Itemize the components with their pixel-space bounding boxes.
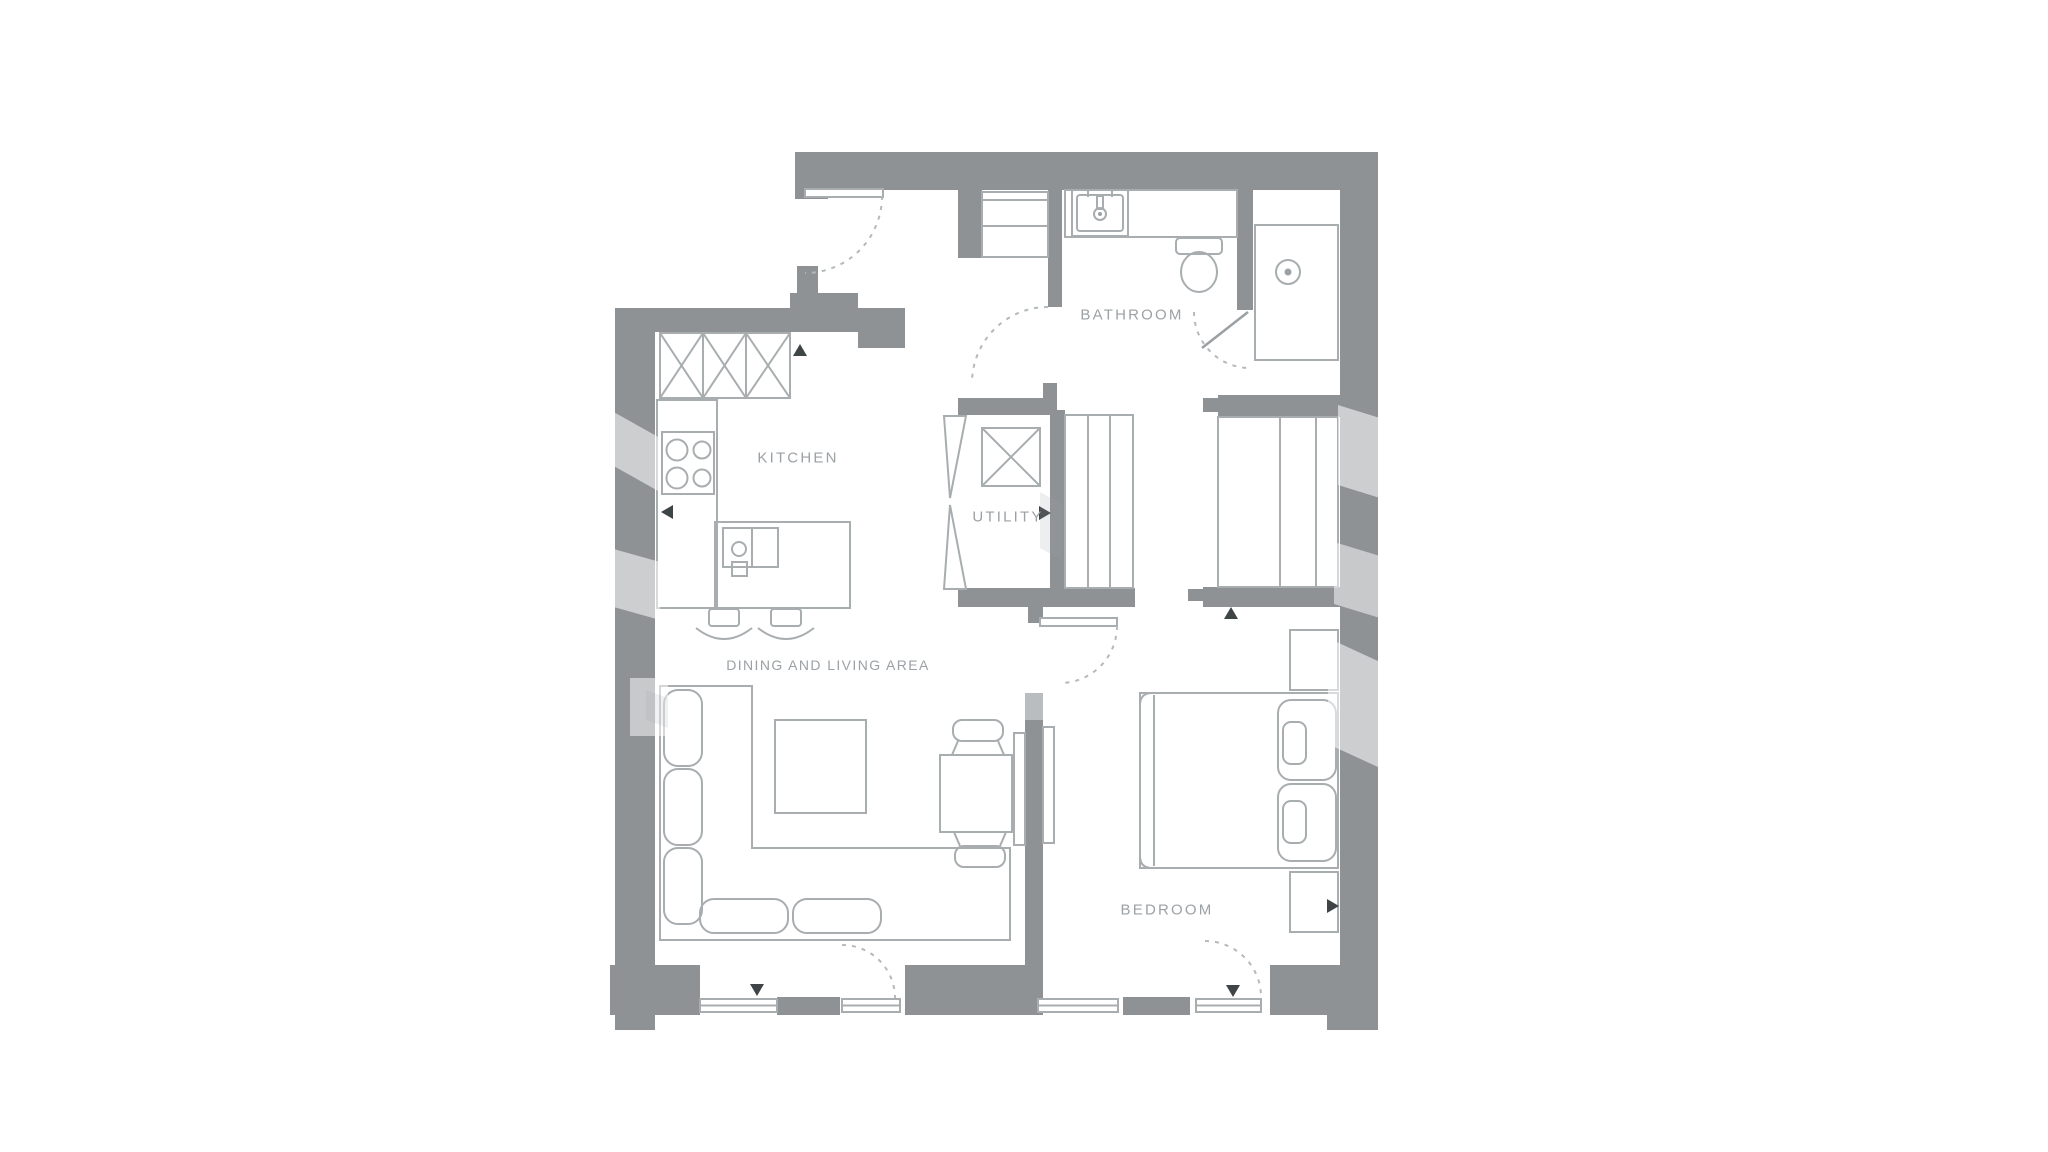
wall-bottom-left-chunk (610, 965, 700, 1015)
island-sink-icon (723, 528, 778, 576)
bedroom-door-swing-icon (1040, 618, 1117, 683)
vanity-counter (1065, 190, 1237, 237)
coffee-table (775, 720, 866, 813)
marker-arrow-down-icon (750, 984, 764, 996)
bed-duvet (1140, 693, 1247, 868)
bathroom-door-swing-icon (972, 307, 1048, 383)
shower-door-swing-icon (1194, 312, 1250, 368)
sink-icon (1072, 190, 1128, 236)
dining-chair (952, 720, 1004, 755)
marker-arrow-up-icon (1224, 607, 1238, 619)
living-balcony-door-swing-icon (842, 945, 895, 998)
room-label-utility: UTILITY (972, 509, 1043, 526)
tv-panel-bedroom (1043, 727, 1054, 843)
toilet-icon (1176, 238, 1222, 292)
wall-partition (1025, 720, 1043, 1015)
wall-wardrobe-tab (1188, 589, 1204, 601)
wall-bathroom-left (1048, 182, 1062, 307)
floorplan: KITCHEN BATHROOM UTILITY DINING AND LIVI… (0, 0, 2048, 1152)
room-label-bathroom: BATHROOM (1080, 307, 1183, 324)
wall-closet-stub (958, 188, 982, 258)
window (700, 999, 777, 1012)
wall-utility-top (958, 398, 1057, 415)
dining-chair (954, 832, 1006, 867)
marker-arrow-up-icon (793, 344, 807, 356)
wall-partition-cap (1025, 693, 1043, 722)
wall-wardrobe-south (1203, 587, 1340, 607)
bathroom-fixtures (1065, 190, 1338, 360)
wall-top (795, 152, 1378, 190)
room-label-kitchen: KITCHEN (757, 450, 838, 467)
utility-bifold-door-icon (944, 416, 966, 589)
marker-arrow-down-icon (1226, 985, 1240, 997)
kitchen-island (715, 522, 850, 608)
wall-pier-3 (1123, 997, 1190, 1015)
dining-table (940, 755, 1012, 832)
tv-panel-living (1014, 733, 1025, 845)
room-label-living: DINING AND LIVING AREA (726, 657, 930, 673)
wall-hall-south (958, 588, 1135, 607)
living-furniture (660, 686, 1054, 940)
wardrobe-icon (1218, 417, 1338, 587)
wall-shower-south (1218, 395, 1340, 417)
cooktop-icon (662, 432, 714, 494)
utility-appliance-icon (982, 428, 1040, 486)
entry-door-swing-icon (805, 189, 883, 273)
bar-stool (696, 609, 752, 639)
bar-stool (758, 609, 814, 639)
sofa-back-cushions (664, 690, 702, 924)
floorplan-drawing (0, 0, 2048, 1152)
kitchen-wall-cabinets-icon (660, 333, 790, 398)
wall-kitchen-north (615, 308, 905, 332)
wall-pier-2 (905, 965, 1035, 1015)
window (1038, 999, 1118, 1012)
shower-icon (1255, 225, 1338, 360)
hall-closet-shelves-icon (982, 192, 1048, 257)
marker-arrow-left-icon (661, 505, 673, 519)
room-label-bedroom: BEDROOM (1121, 902, 1214, 919)
wall-shower-tab (1203, 398, 1218, 412)
wall-hinge-nub (1043, 383, 1057, 400)
bedroom-furniture (1140, 417, 1338, 932)
wall-bath-shower-divider (1237, 182, 1253, 310)
pillows (1278, 700, 1336, 861)
balcony-door-leaf (1196, 999, 1261, 1012)
balcony-door-leaf (842, 999, 900, 1012)
sofa-seat-cushions (700, 899, 881, 933)
wall-pier-1 (777, 997, 840, 1015)
wall-kitchen-north-drop (858, 332, 905, 348)
storage-shelving-icon (1065, 415, 1133, 588)
kitchen-furniture (657, 333, 850, 639)
